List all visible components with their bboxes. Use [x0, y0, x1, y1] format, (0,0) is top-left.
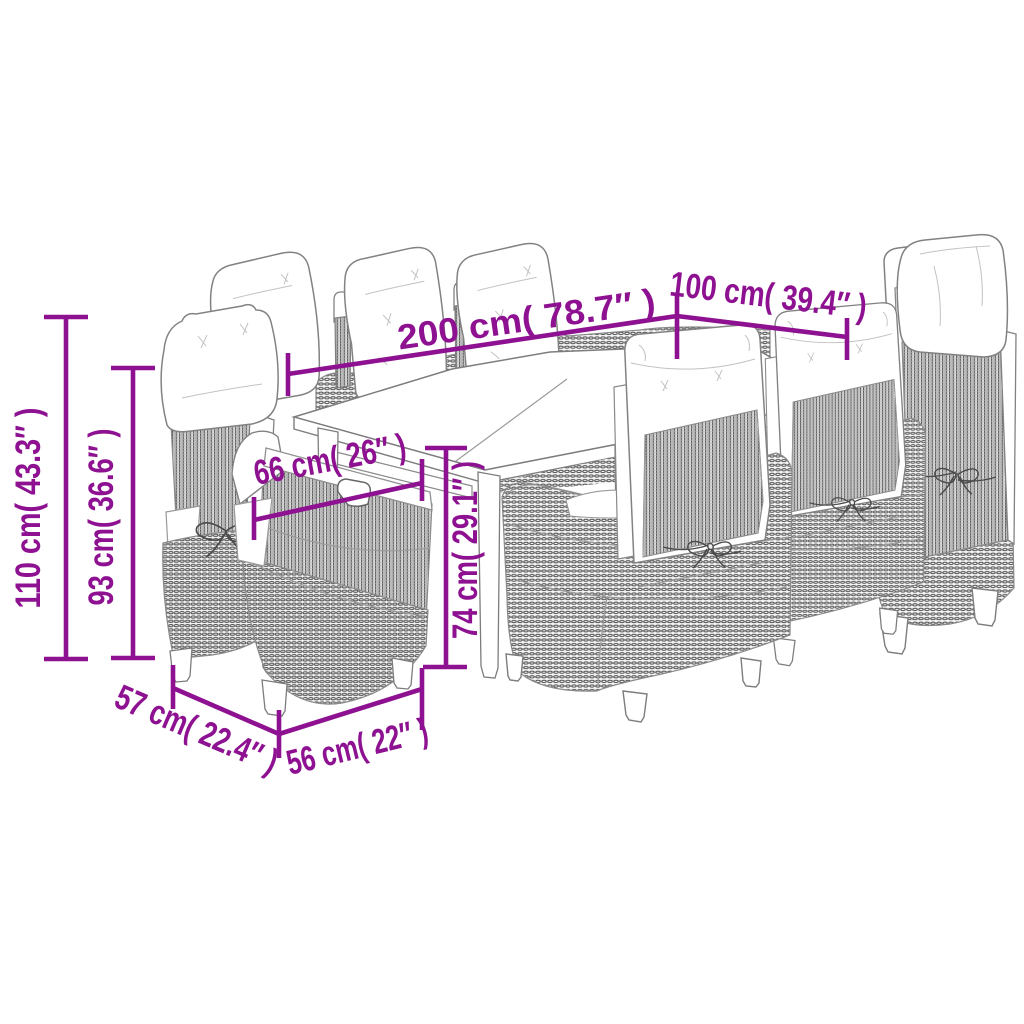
svg-text:110 cm( 43.3″ ): 110 cm( 43.3″ ) — [9, 408, 48, 609]
svg-text:93 cm( 36.6″ ): 93 cm( 36.6″ ) — [82, 429, 121, 606]
svg-text:74 cm( 29.1″ ): 74 cm( 29.1″ ) — [446, 461, 485, 639]
